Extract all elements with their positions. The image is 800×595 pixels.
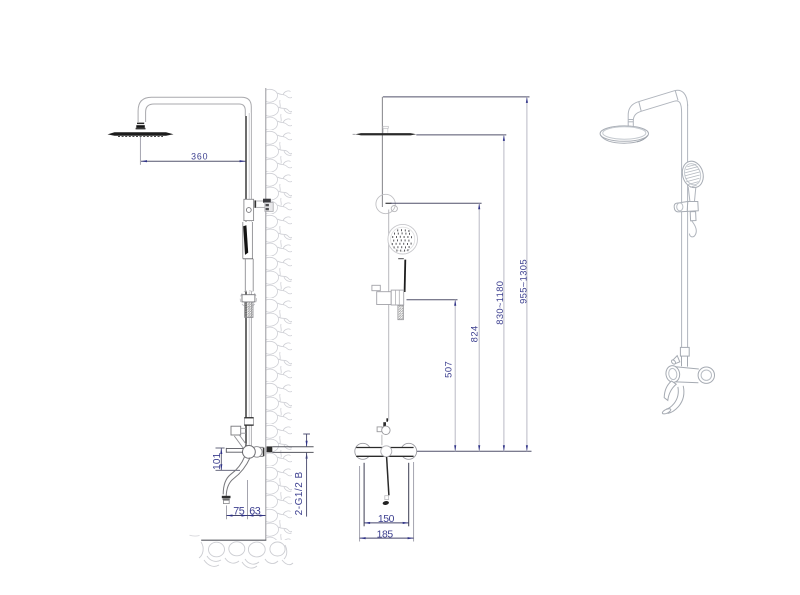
svg-text:75: 75: [233, 506, 245, 518]
svg-text:185: 185: [377, 529, 394, 540]
svg-text:2-G1/2 B: 2-G1/2 B: [294, 471, 305, 515]
svg-text:360: 360: [191, 152, 208, 162]
svg-text:150: 150: [378, 514, 395, 525]
svg-text:63: 63: [249, 506, 261, 518]
svg-text:955~1305: 955~1305: [518, 259, 529, 304]
svg-text:507: 507: [443, 361, 454, 378]
svg-text:824: 824: [469, 325, 480, 342]
svg-text:830~1180: 830~1180: [494, 281, 505, 325]
svg-text:101: 101: [212, 452, 223, 470]
